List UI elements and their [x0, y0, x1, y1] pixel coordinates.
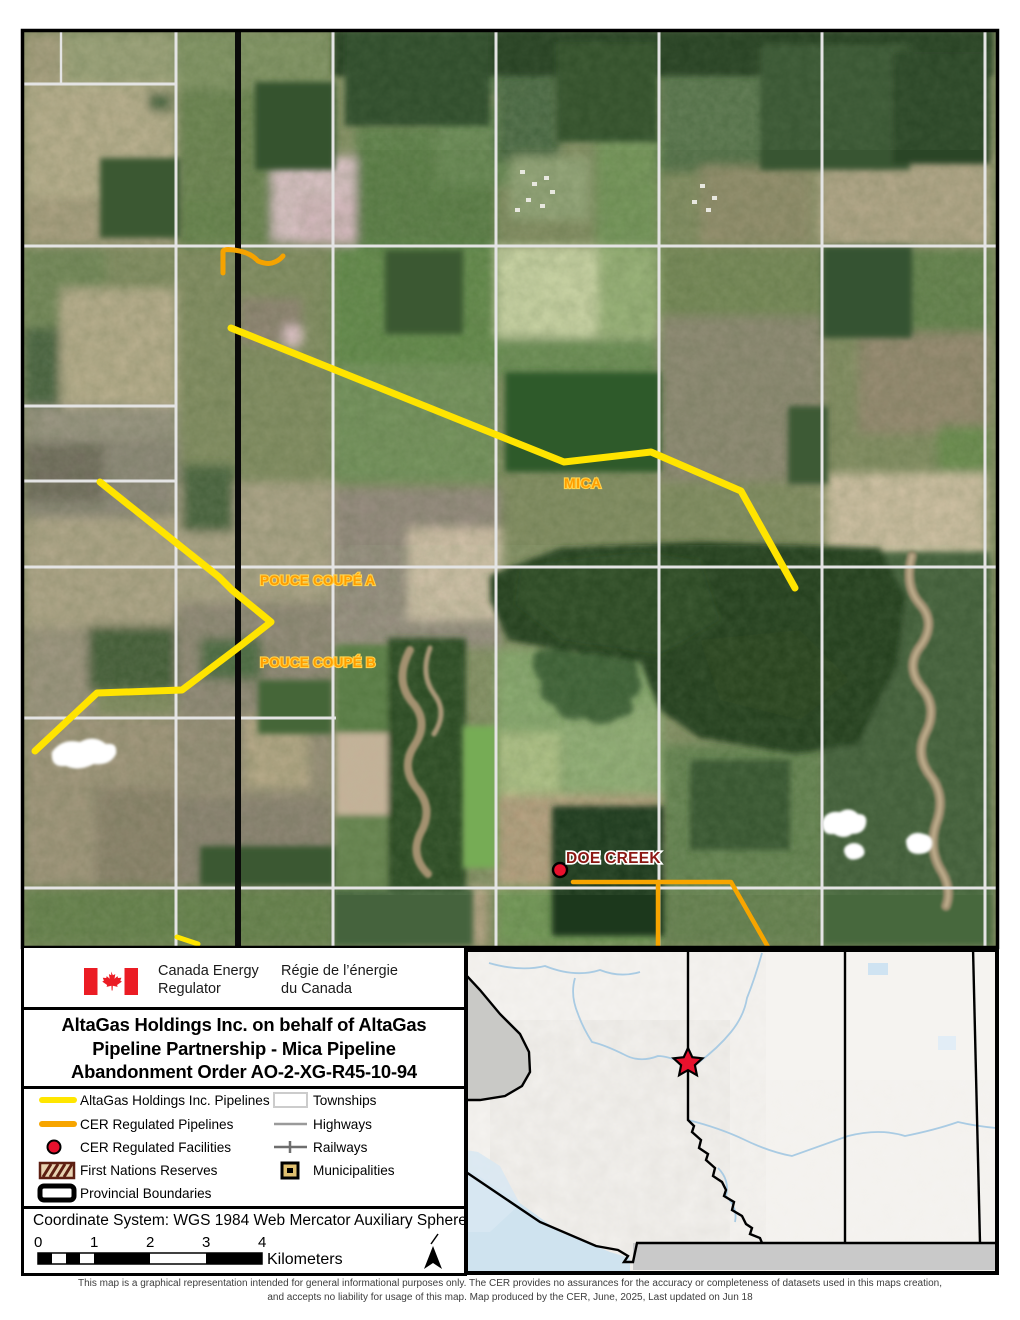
svg-text:MICA: MICA — [564, 475, 602, 491]
svg-text:POUCE COUPÉ B: POUCE COUPÉ B — [260, 655, 376, 670]
svg-text:POUCE COUPÉ A: POUCE COUPÉ A — [260, 573, 375, 588]
svg-text:DOE CREEK: DOE CREEK — [566, 850, 661, 867]
